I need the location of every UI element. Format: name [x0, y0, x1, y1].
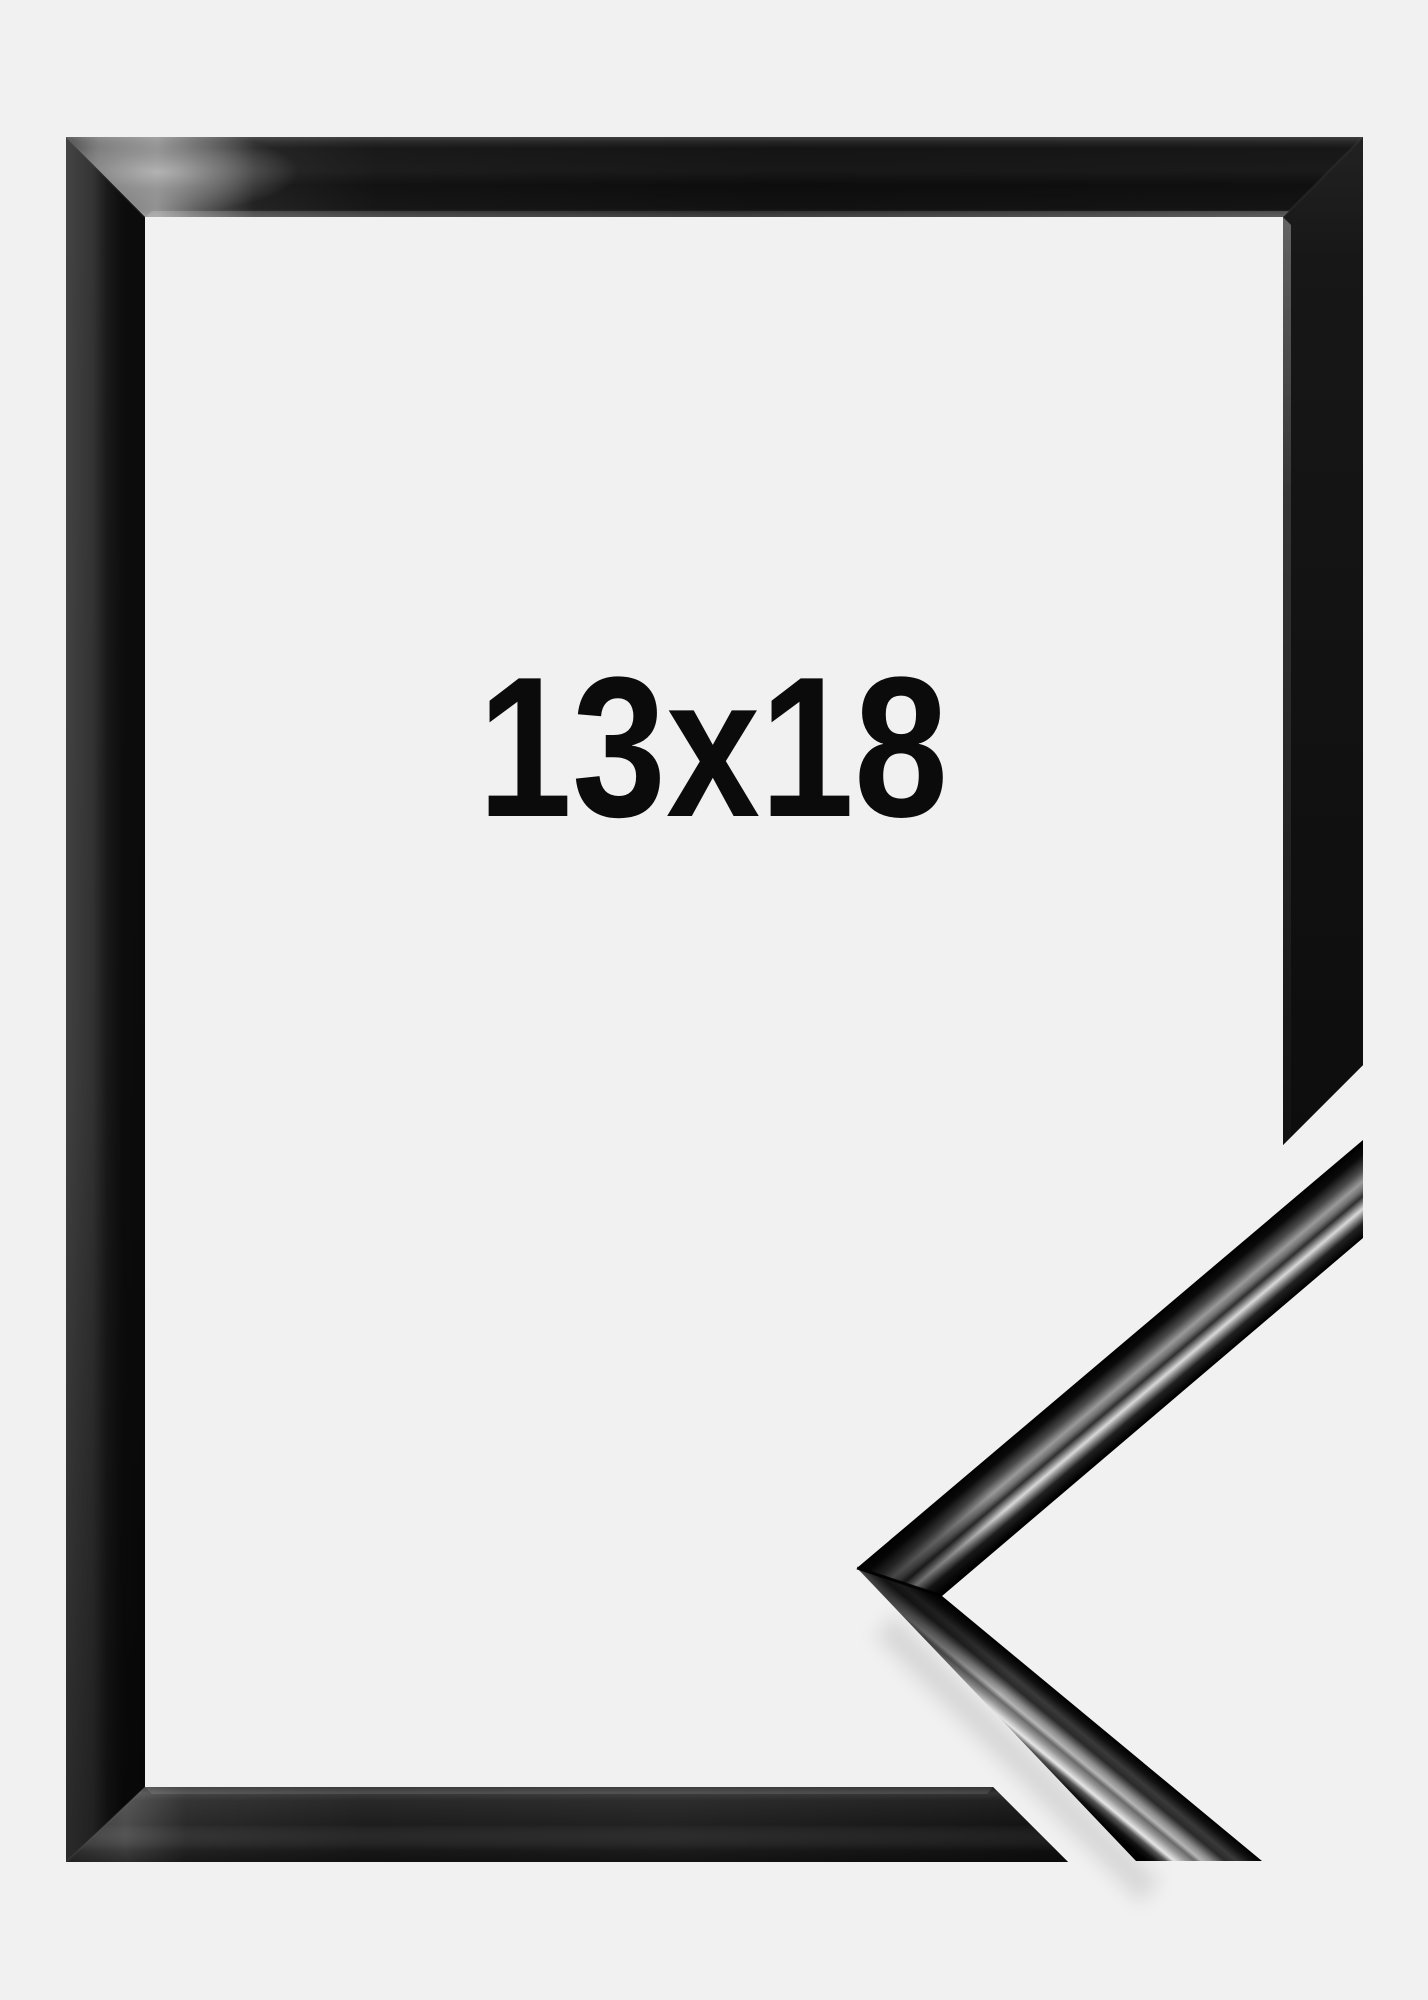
- frame-bottom-rail-sheen: [66, 1787, 1068, 1862]
- frame-bottom-rail-lip-highlight: [145, 1787, 993, 1794]
- frame-left-rail-shade: [66, 137, 145, 1862]
- frame-top-rail-lip-highlight: [145, 211, 1289, 217]
- photo-background: [0, 0, 1428, 2000]
- frame-illustration: 13x18: [0, 0, 1428, 2000]
- product-photo-frame-sample: 13x18: [0, 0, 1428, 2000]
- frame-right-rail: [1283, 137, 1363, 1145]
- frame-size-label: 13x18: [478, 636, 948, 859]
- frame-right-rail-lip-highlight: [1283, 217, 1291, 1145]
